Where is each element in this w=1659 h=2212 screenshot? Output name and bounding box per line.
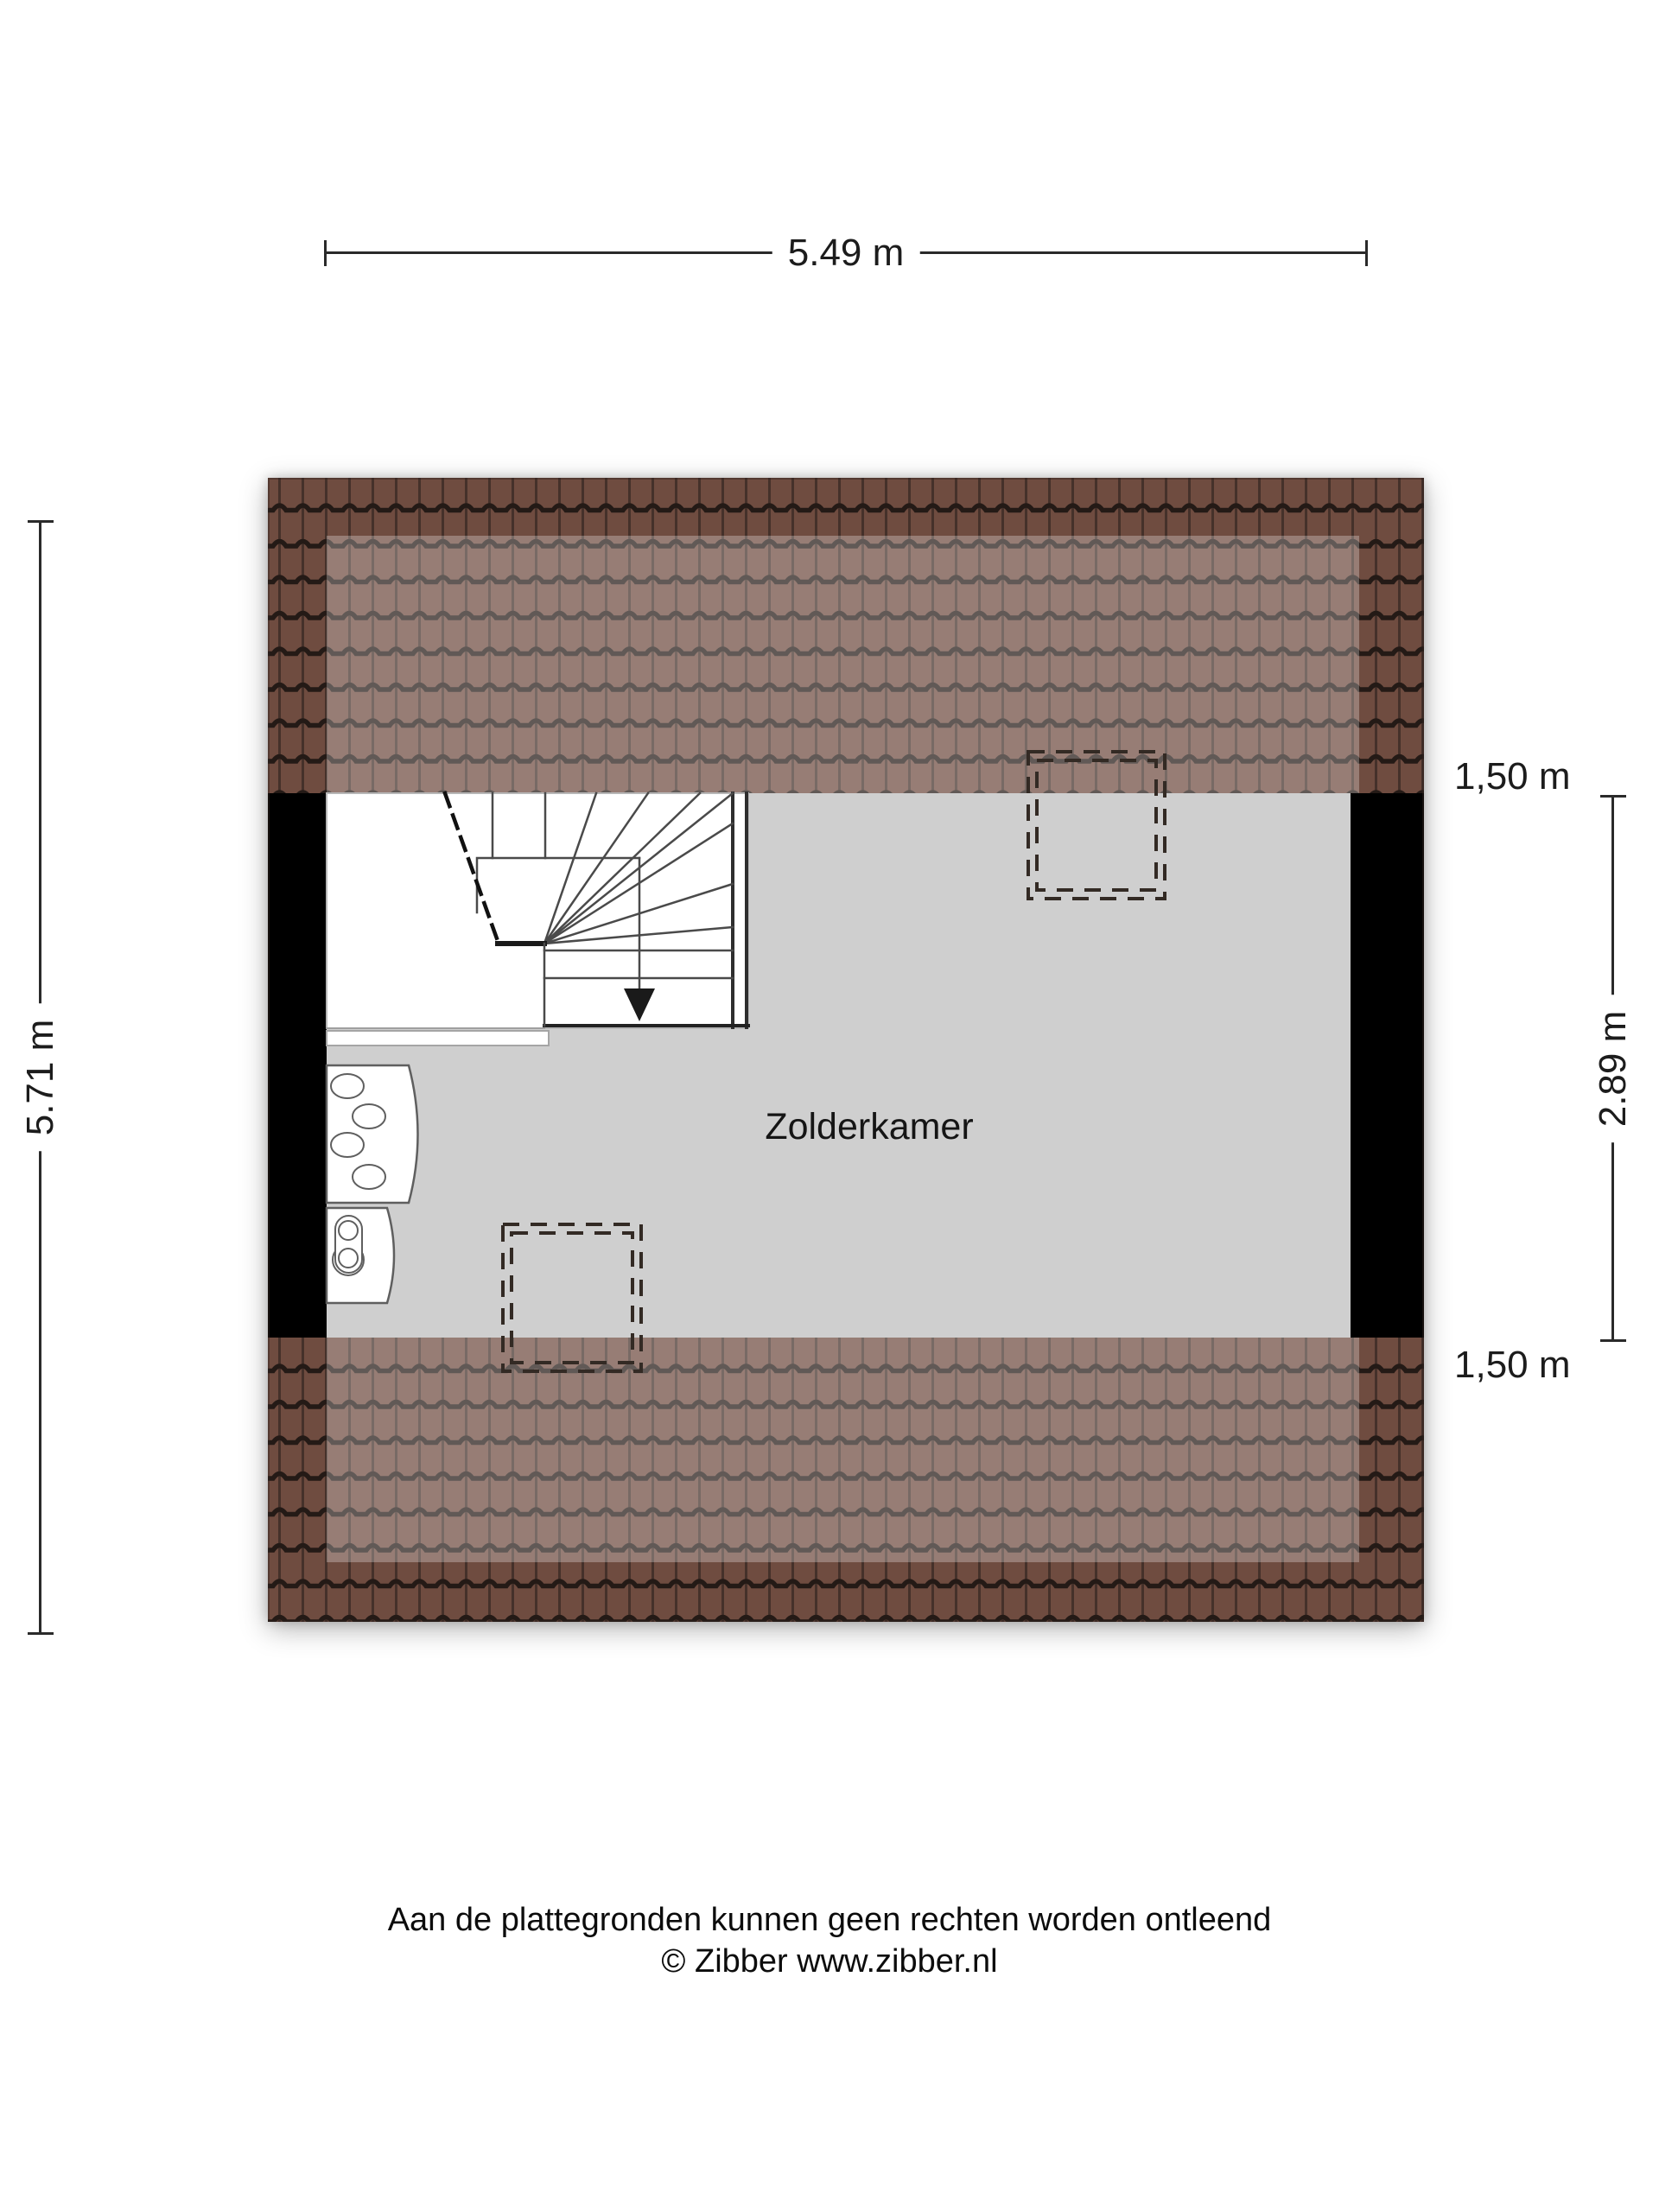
copyright-text: © Zibber www.zibber.nl [0,1941,1659,1982]
roof-bottom [268,1338,1424,1622]
dimension-tick-top [1600,795,1626,798]
dimension-right-height-label: 2.89 m [1592,995,1634,1142]
wall-right [1351,793,1424,1338]
stair-enclosure [327,793,748,1028]
dimension-tick-right [1365,240,1368,266]
dimension-right-height: 2.89 m [1611,795,1614,1342]
dimension-tick-top [28,520,54,523]
dimension-total-height-label: 5.71 m [20,1004,61,1152]
floorplan-page: 5.49 m 5.71 m 2.89 m 1,50 m 1,50 m [0,0,1659,2212]
knee-wall-top-label: 1,50 m [1454,758,1571,796]
dimension-total-width: 5.49 m [324,251,1368,254]
dimension-tick-bottom [28,1632,54,1635]
dimension-tick-left [324,240,327,266]
knee-wall-strip [327,1031,549,1046]
floorplan-drawing: Zolderkamer [268,478,1424,1622]
appliance-washer [327,1065,418,1203]
roof-top [268,478,1424,793]
dimension-total-width-label: 5.49 m [772,232,920,274]
wall-left [268,793,327,1338]
disclaimer-text: Aan de plattegronden kunnen geen rechten… [0,1899,1659,1941]
floorplan-svg [268,478,1424,1622]
staircase [327,793,748,1046]
dimension-total-height: 5.71 m [39,520,41,1635]
room-label: Zolderkamer [740,1107,999,1147]
dimension-tick-bottom [1600,1339,1626,1342]
knee-wall-bottom-label: 1,50 m [1454,1346,1571,1384]
appliance-boiler [327,1208,394,1303]
footer: Aan de plattegronden kunnen geen rechten… [0,1899,1659,1982]
